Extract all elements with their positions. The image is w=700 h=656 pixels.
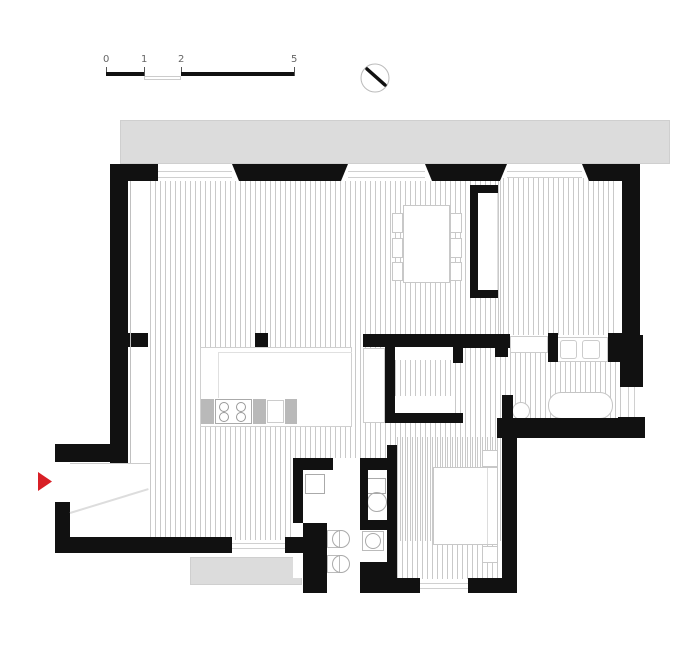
closet-shelf-bottom <box>395 396 453 413</box>
kitchen-sink <box>267 400 284 423</box>
window-glazing-line <box>420 583 468 584</box>
stove-burner <box>236 412 246 422</box>
floor-bedroom-top-right <box>498 178 617 335</box>
bathtub <box>548 392 613 419</box>
window-bottom-1 <box>232 540 285 552</box>
dining-chair <box>392 238 403 258</box>
stove-burner <box>236 402 246 412</box>
window-glazing-line <box>507 177 582 178</box>
laundry-unit-drum <box>332 555 350 573</box>
wall-closet-top <box>363 334 463 347</box>
closet-wardrobe-strip <box>363 348 385 423</box>
dining-chair <box>450 262 462 281</box>
wall-bottom-1 <box>55 537 232 553</box>
balcony-bottom <box>190 557 302 585</box>
wall-right-upper <box>622 164 640 335</box>
kitchen-cabinet <box>285 399 297 424</box>
window-glazing-line <box>348 177 425 178</box>
wall-closet-left <box>385 334 395 423</box>
wall-right-bath <box>620 335 643 387</box>
floor-closet-passage <box>395 358 463 400</box>
dining-chair <box>392 262 403 281</box>
toilet-bowl <box>367 492 387 512</box>
wall-entry-upper <box>55 444 128 462</box>
kitchen-island-counter-line-h <box>218 352 352 353</box>
wall-closet-bottom <box>385 413 463 423</box>
wall-bath-mid <box>548 333 558 362</box>
wc-sink-bowl <box>365 533 381 549</box>
wall-block-left <box>293 458 303 523</box>
entrance-arrow <box>38 472 52 491</box>
wall-block-bottom-right <box>360 562 397 593</box>
wall-bedroom2-right <box>502 437 517 593</box>
vanity-basin <box>582 340 600 359</box>
window-glazing-line <box>507 171 582 172</box>
laundry-unit-drum <box>332 530 350 548</box>
wall-bottom-2 <box>285 537 303 553</box>
wall-bath-right <box>608 333 622 362</box>
entry-door-swing <box>70 488 149 514</box>
washing-machine <box>305 474 325 494</box>
stove-burner <box>219 402 229 412</box>
window-right <box>622 387 643 417</box>
wall-top-2 <box>232 164 348 181</box>
closet-shelf-top <box>395 347 453 360</box>
wall-wardrobe-bottom <box>470 290 498 298</box>
wall-horizontal-low <box>497 418 645 438</box>
kitchen-island-counter-line-v <box>218 352 219 398</box>
window-glazing-line <box>158 177 232 178</box>
kitchen-column <box>255 333 268 347</box>
bathroom-niche <box>510 336 548 353</box>
nightstand <box>482 450 498 467</box>
wall-bath-stub <box>495 334 508 357</box>
window-bottom-2 <box>420 580 468 592</box>
dining-chair <box>450 238 462 258</box>
wall-block-divider-h <box>360 520 387 530</box>
window-glazing-line <box>348 171 425 172</box>
window-glazing-line <box>232 548 285 549</box>
window-glazing-line <box>232 543 285 544</box>
bed <box>433 467 498 545</box>
window-glazing-line <box>634 387 635 417</box>
wall-block-right <box>387 445 397 565</box>
wall-top-3 <box>425 164 507 181</box>
nightstand <box>482 546 498 563</box>
wall-left <box>110 164 128 463</box>
plan-elements <box>0 0 700 656</box>
wall-left-stub <box>128 333 148 347</box>
window-glazing-line <box>420 588 468 589</box>
stove-burner <box>219 412 229 422</box>
wall-block-chunk <box>303 523 327 593</box>
dining-chair <box>392 213 403 233</box>
entry-corridor-line <box>70 463 150 464</box>
vanity-basin <box>560 340 577 359</box>
dining-chair <box>450 213 462 233</box>
wall-wardrobe-left <box>470 185 478 298</box>
kitchen-cabinet <box>201 399 214 424</box>
bed-pillow-line <box>487 468 488 544</box>
window-glazing-line <box>628 387 629 417</box>
kitchen-cabinet <box>253 399 266 424</box>
wall-face-line <box>130 181 131 463</box>
dining-table <box>403 205 450 283</box>
window-glazing-line <box>158 171 232 172</box>
wall-bottom-3 <box>397 578 420 593</box>
wall-bottom-4 <box>468 578 517 593</box>
floor-plan-canvas: 0 1 2 5 <box>0 0 700 656</box>
balcony-top <box>120 120 670 164</box>
